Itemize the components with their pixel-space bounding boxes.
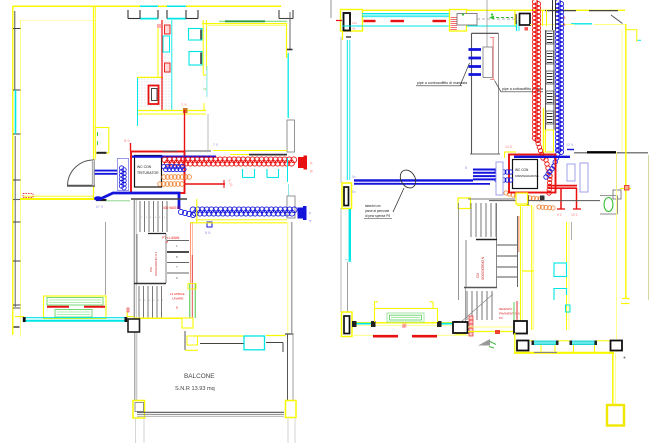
svg-text:a: a xyxy=(308,212,312,215)
svg-text:BALCONE: BALCONE xyxy=(184,373,215,380)
svg-text:di pew spense P5: di pew spense P5 xyxy=(365,214,390,218)
svg-text:14 5: 14 5 xyxy=(505,145,512,149)
svg-text:8: 8 xyxy=(176,255,178,259)
svg-text:B B: B B xyxy=(205,231,211,235)
svg-text:13 APRILE: 13 APRILE xyxy=(170,292,185,296)
svg-text:19 2: 19 2 xyxy=(571,213,578,217)
svg-text:TRITURATOR: TRITURATOR xyxy=(137,171,159,175)
svg-text:12s: 12s xyxy=(352,21,357,25)
svg-text:PT x LAVAN: PT x LAVAN xyxy=(162,236,180,240)
svg-text:7: 7 xyxy=(176,265,178,269)
svg-text:3: 3 xyxy=(150,217,152,219)
svg-text:9 2: 9 2 xyxy=(557,213,562,217)
svg-text:DISINTEGRAZIONE: DISINTEGRAZIONE xyxy=(515,174,539,178)
svg-text:5 10: 5 10 xyxy=(227,179,233,187)
svg-text:12 9: 12 9 xyxy=(566,143,573,147)
svg-text:8: 8 xyxy=(144,300,146,302)
svg-text:B: B xyxy=(465,166,468,170)
svg-text:SOGGIORNO N.1: SOGGIORNO N.1 xyxy=(154,251,158,276)
svg-text:7 0: 7 0 xyxy=(213,143,218,147)
svg-text:B: B xyxy=(309,170,314,173)
svg-text:1: 1 xyxy=(176,244,178,248)
svg-text:8: 8 xyxy=(153,300,155,302)
svg-text:S.N.R 13.93 mq: S.N.R 13.93 mq xyxy=(175,386,215,392)
svg-text:SOGGIORNO N: SOGGIORNO N xyxy=(481,256,485,280)
svg-text:LAVARE: LAVARE xyxy=(172,297,183,301)
svg-text:4: 4 xyxy=(155,217,157,219)
svg-text:WC CON: WC CON xyxy=(515,168,529,172)
svg-text:8: 8 xyxy=(140,300,142,302)
svg-text:6 9: 6 9 xyxy=(124,138,130,143)
svg-text:5x: 5x xyxy=(352,175,356,179)
svg-text:josne al pensrote: josne al pensrote xyxy=(364,209,390,213)
svg-text:9: 9 xyxy=(176,306,178,310)
svg-text:CM: CM xyxy=(476,273,480,278)
svg-text:P3: P3 xyxy=(499,316,503,320)
svg-text:2: 2 xyxy=(203,88,207,90)
svg-text:CM: CM xyxy=(149,267,153,272)
svg-text:4a: 4a xyxy=(352,27,356,31)
svg-text:9: 9 xyxy=(176,276,178,280)
svg-text:400 WASTE: 400 WASTE xyxy=(163,206,180,210)
svg-text:8: 8 xyxy=(149,300,151,302)
svg-text:A: A xyxy=(309,162,314,165)
svg-text:67 9: 67 9 xyxy=(96,205,103,209)
svg-text:RE/ESPO: RE/ESPO xyxy=(499,307,513,311)
svg-text:5: 5 xyxy=(159,217,161,219)
svg-text:1: 1 xyxy=(141,217,143,219)
svg-text:2: 2 xyxy=(146,217,148,219)
svg-text:6: 6 xyxy=(164,217,166,219)
svg-text:tabedni cm: tabedni cm xyxy=(365,204,381,208)
svg-text:7 9: 7 9 xyxy=(181,102,187,107)
svg-text:b: b xyxy=(308,220,312,222)
svg-text:pipe a controsoffitto di manda: pipe a controsoffitto di mandata xyxy=(417,81,467,85)
svg-text:5x: 5x xyxy=(352,190,356,194)
svg-text:WC CON: WC CON xyxy=(137,165,152,169)
svg-text:8: 8 xyxy=(158,300,160,302)
svg-text:8: 8 xyxy=(162,300,164,302)
